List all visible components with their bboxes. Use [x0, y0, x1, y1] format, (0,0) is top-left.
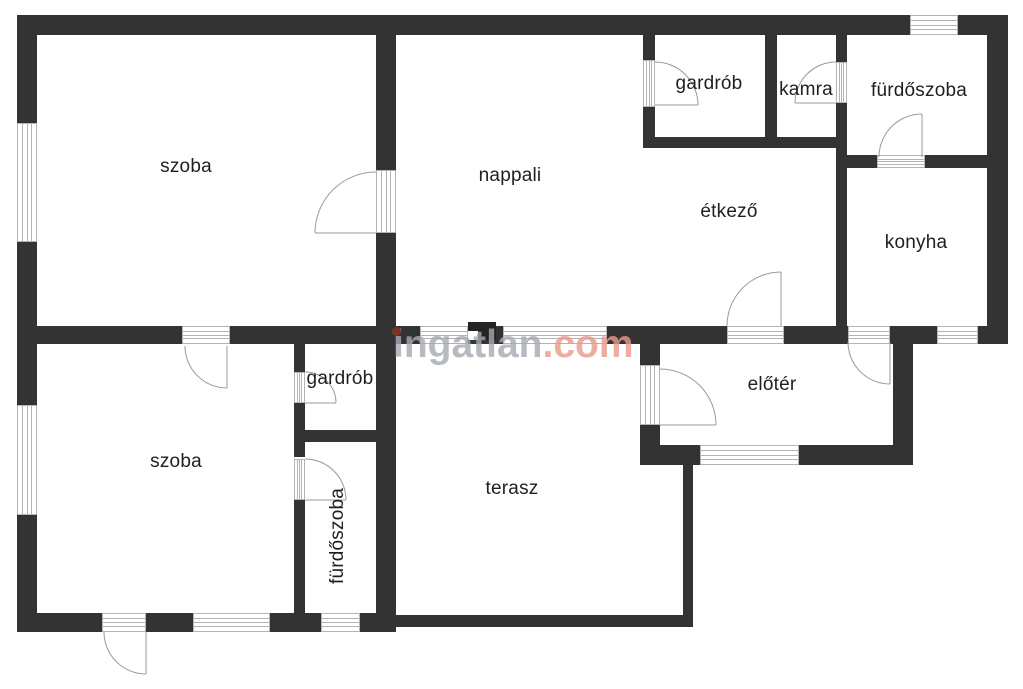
watermark-suffix: .com	[543, 323, 634, 366]
room-label-etkezo: étkező	[700, 201, 757, 223]
room-label-gardrob-bottom: gardrób	[307, 368, 374, 390]
room-label-kamra: kamra	[779, 79, 833, 101]
room-label-eloter: előtér	[748, 374, 797, 396]
room-label-terasz: terasz	[486, 478, 539, 500]
room-label-nappali: nappali	[479, 165, 542, 187]
watermark-dot-icon	[392, 327, 401, 336]
watermark: ingatlan.com	[393, 325, 634, 364]
room-label-konyha: konyha	[885, 232, 947, 254]
room-label-szoba-top: szoba	[160, 156, 212, 178]
room-label-gardrob-top: gardrób	[676, 73, 743, 95]
room-label-furdoszoba-bottom: fürdőszoba	[327, 488, 349, 584]
watermark-main: ingatlan	[393, 323, 543, 366]
room-label-furdoszoba-top: fürdőszoba	[871, 80, 967, 102]
floorplan-canvas: szobanappaligardróbkamrafürdőszobaétkező…	[0, 0, 1023, 689]
room-label-szoba-bottom: szoba	[150, 451, 202, 473]
